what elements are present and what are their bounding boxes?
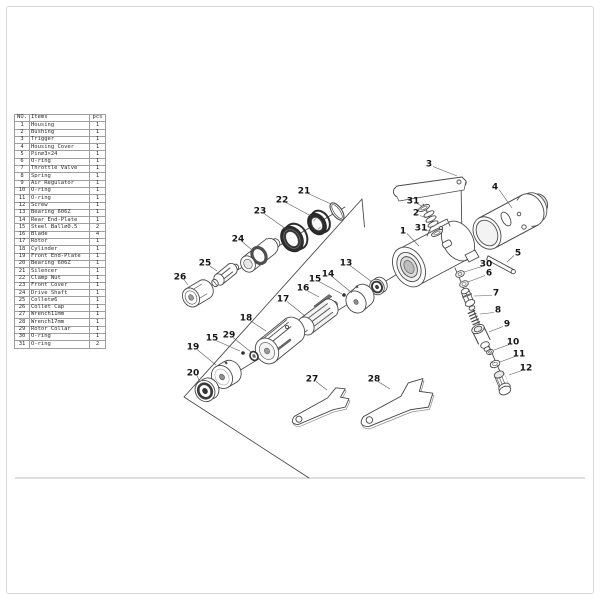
- callout-leader-steel-ball: [319, 282, 342, 295]
- callout-number-housing-cover: 4: [492, 183, 498, 193]
- callout-leader-silencer: [308, 194, 331, 205]
- callout-number-collet-cap: 26: [174, 273, 187, 283]
- callout-number-o-ring: 31: [407, 197, 420, 207]
- callout-number-o-ring: 31: [415, 224, 428, 234]
- callout-number-screw: 12: [520, 364, 533, 374]
- callout-leader-cylinder: [250, 321, 266, 332]
- housing-cover-drawing: [468, 188, 552, 254]
- callout-leader-pin: [507, 256, 514, 263]
- callout-number-front-cover: 23: [254, 207, 267, 217]
- callout-number-silencer: 21: [298, 187, 311, 197]
- screw-drawing: [493, 370, 512, 397]
- callout-number-wrench-11mm: 27: [306, 375, 319, 385]
- callout-number-wrench-17mm: 28: [368, 375, 381, 385]
- callout-number-trigger: 3: [426, 160, 432, 170]
- steel-ball-upper: [342, 293, 346, 297]
- front-cover-drawing: [276, 220, 312, 256]
- callout-leader-front-cover: [264, 214, 286, 230]
- callout-number-rear-end-plate: 14: [322, 270, 335, 280]
- callout-leader-spring: [480, 313, 494, 315]
- callout-number-o-ring: 10: [507, 338, 520, 348]
- callout-leader-bearing: [350, 266, 372, 283]
- callout-number-pin: 5: [515, 249, 521, 259]
- callout-number-spring: 8: [495, 306, 501, 316]
- callout-number-bushing: 2: [413, 209, 419, 219]
- callout-leader-throttle-valve: [474, 296, 492, 297]
- wrench-27-drawing: [287, 384, 353, 433]
- callout-number-bearing: 13: [340, 259, 353, 269]
- collet-drawing: [210, 261, 239, 287]
- callout-leader-clamp-nut: [286, 203, 311, 217]
- callout-leader-air-regulator: [489, 327, 503, 333]
- callout-leader-rotor: [287, 302, 305, 317]
- callout-leader-front-end-plate: [197, 350, 216, 366]
- wrench-28-drawing: [354, 375, 438, 439]
- callout-leader-trigger: [433, 167, 457, 177]
- callout-number-rotor-collar: 29: [223, 331, 236, 341]
- callout-number-steel-ball: 15: [206, 334, 219, 344]
- callout-number-air-regulator: 9: [504, 320, 510, 330]
- regulator-chain-drawing: [455, 269, 512, 396]
- callout-leader-housing-cover: [499, 190, 512, 209]
- spring-drawing: [468, 311, 479, 325]
- trigger-drawing: [393, 177, 466, 201]
- motor-assembly-drawing: [191, 275, 390, 406]
- callout-number-clamp-nut: 22: [276, 196, 289, 206]
- callout-number-drive-shaft: 24: [232, 235, 245, 245]
- callout-number-front-end-plate: 19: [187, 343, 200, 353]
- air-regulator-drawing: [470, 323, 490, 352]
- front-assembly-drawing: [179, 201, 347, 311]
- callout-number-o-ring: 11: [513, 350, 526, 360]
- callout-number-bearing: 20: [187, 369, 200, 379]
- callout-number-steel-ball: 15: [309, 275, 322, 285]
- callout-number-cylinder: 18: [240, 314, 253, 324]
- callout-leader-steel-ball: [216, 341, 240, 352]
- clamp-nut-drawing: [304, 207, 334, 238]
- callout-leader-rotor-collar: [233, 338, 251, 353]
- parts-diagram-sheet: NO.Itemspcs 1Housing12Bushing13Trigger14…: [0, 0, 600, 600]
- callout-leader-o-ring: [468, 276, 485, 283]
- steel-ball-lower: [241, 351, 245, 355]
- exploded-diagram: 1234531313067891011121314151617182915192…: [0, 0, 600, 600]
- callout-number-blade: 16: [297, 284, 310, 294]
- callout-number-o-ring: 6: [486, 269, 492, 279]
- callout-number-throttle-valve: 7: [493, 289, 499, 299]
- callout-number-rotor: 17: [277, 295, 290, 305]
- callout-number-housing: 1: [400, 227, 406, 237]
- callout-number-collet: 25: [199, 259, 212, 269]
